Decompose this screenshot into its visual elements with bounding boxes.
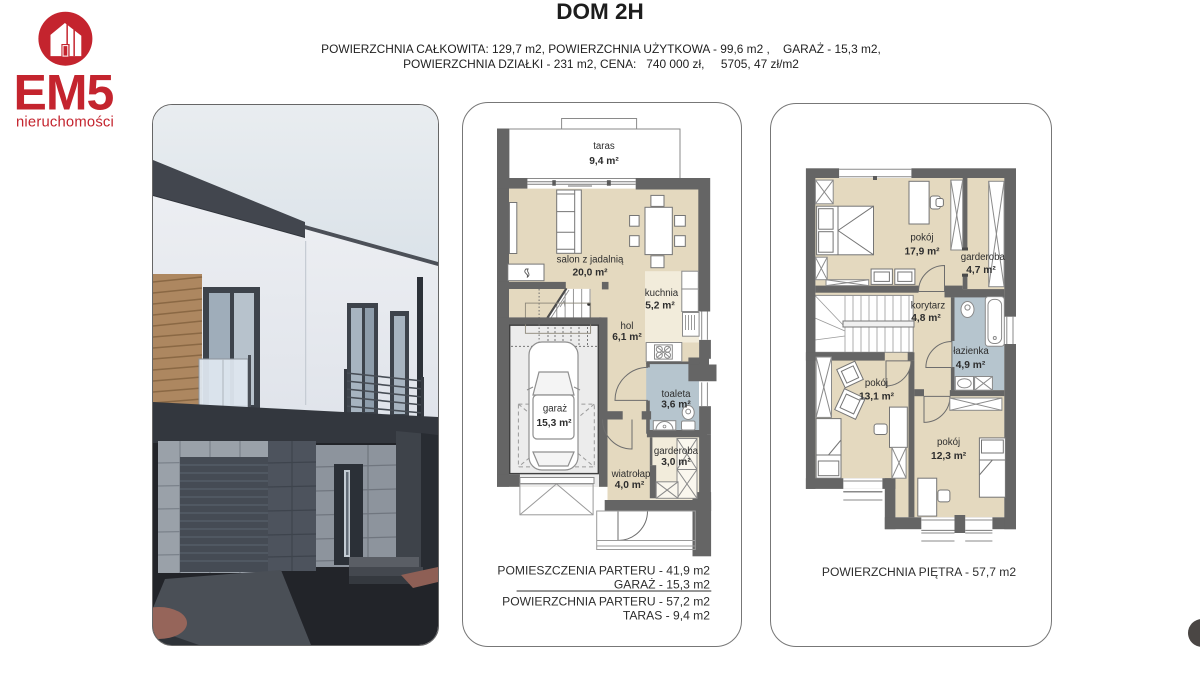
svg-text:4,0 m²: 4,0 m² xyxy=(615,480,645,491)
svg-text:garderoba: garderoba xyxy=(654,446,699,457)
svg-text:5,2 m²: 5,2 m² xyxy=(645,301,675,312)
svg-text:garaż: garaż xyxy=(543,404,567,415)
svg-text:POWIERZCHNIA PARTERU - 57,2 m2: POWIERZCHNIA PARTERU - 57,2 m2 xyxy=(502,595,710,609)
svg-text:pokój: pokój xyxy=(937,437,960,448)
svg-text:taras: taras xyxy=(593,141,615,152)
svg-text:TARAS - 9,4 m2: TARAS - 9,4 m2 xyxy=(623,609,710,623)
svg-text:salon z jadalnią: salon z jadalnią xyxy=(557,255,624,266)
svg-text:pokój: pokój xyxy=(865,378,888,389)
svg-text:13,1 m²: 13,1 m² xyxy=(859,391,895,402)
svg-text:łazienka: łazienka xyxy=(953,346,989,357)
svg-text:GARAŻ - 15,3 m2: GARAŻ - 15,3 m2 xyxy=(614,578,710,592)
svg-text:korytarz: korytarz xyxy=(911,301,946,312)
svg-text:4,7 m²: 4,7 m² xyxy=(966,265,996,276)
svg-text:4,8 m²: 4,8 m² xyxy=(911,313,941,324)
svg-text:EM5: EM5 xyxy=(14,65,114,121)
svg-text:17,9 m²: 17,9 m² xyxy=(904,247,940,258)
svg-text:kuchnia: kuchnia xyxy=(645,288,679,299)
svg-text:12,3 m²: 12,3 m² xyxy=(931,451,967,462)
svg-text:wiatrołap: wiatrołap xyxy=(611,469,651,480)
svg-text:garderoba: garderoba xyxy=(961,252,1006,263)
svg-text:POWIERZCHNIA PIĘTRA - 57,7 m2: POWIERZCHNIA PIĘTRA - 57,7 m2 xyxy=(822,565,1016,579)
svg-text:3,6 m²: 3,6 m² xyxy=(661,400,691,411)
svg-text:POMIESZCZENIA PARTERU - 41,9 m: POMIESZCZENIA PARTERU - 41,9 m2 xyxy=(497,564,710,578)
svg-text:4,9 m²: 4,9 m² xyxy=(956,360,986,371)
svg-text:hol: hol xyxy=(621,321,634,332)
svg-text:15,3 m²: 15,3 m² xyxy=(536,418,572,429)
svg-text:nieruchomości: nieruchomości xyxy=(16,115,114,131)
svg-text:6,1 m²: 6,1 m² xyxy=(612,332,642,343)
svg-text:pokój: pokój xyxy=(910,233,933,244)
svg-text:9,4 m²: 9,4 m² xyxy=(589,156,619,167)
svg-text:20,0 m²: 20,0 m² xyxy=(572,268,608,279)
svg-text:toaleta: toaleta xyxy=(661,389,691,400)
svg-text:3,0 m²: 3,0 m² xyxy=(661,457,691,468)
